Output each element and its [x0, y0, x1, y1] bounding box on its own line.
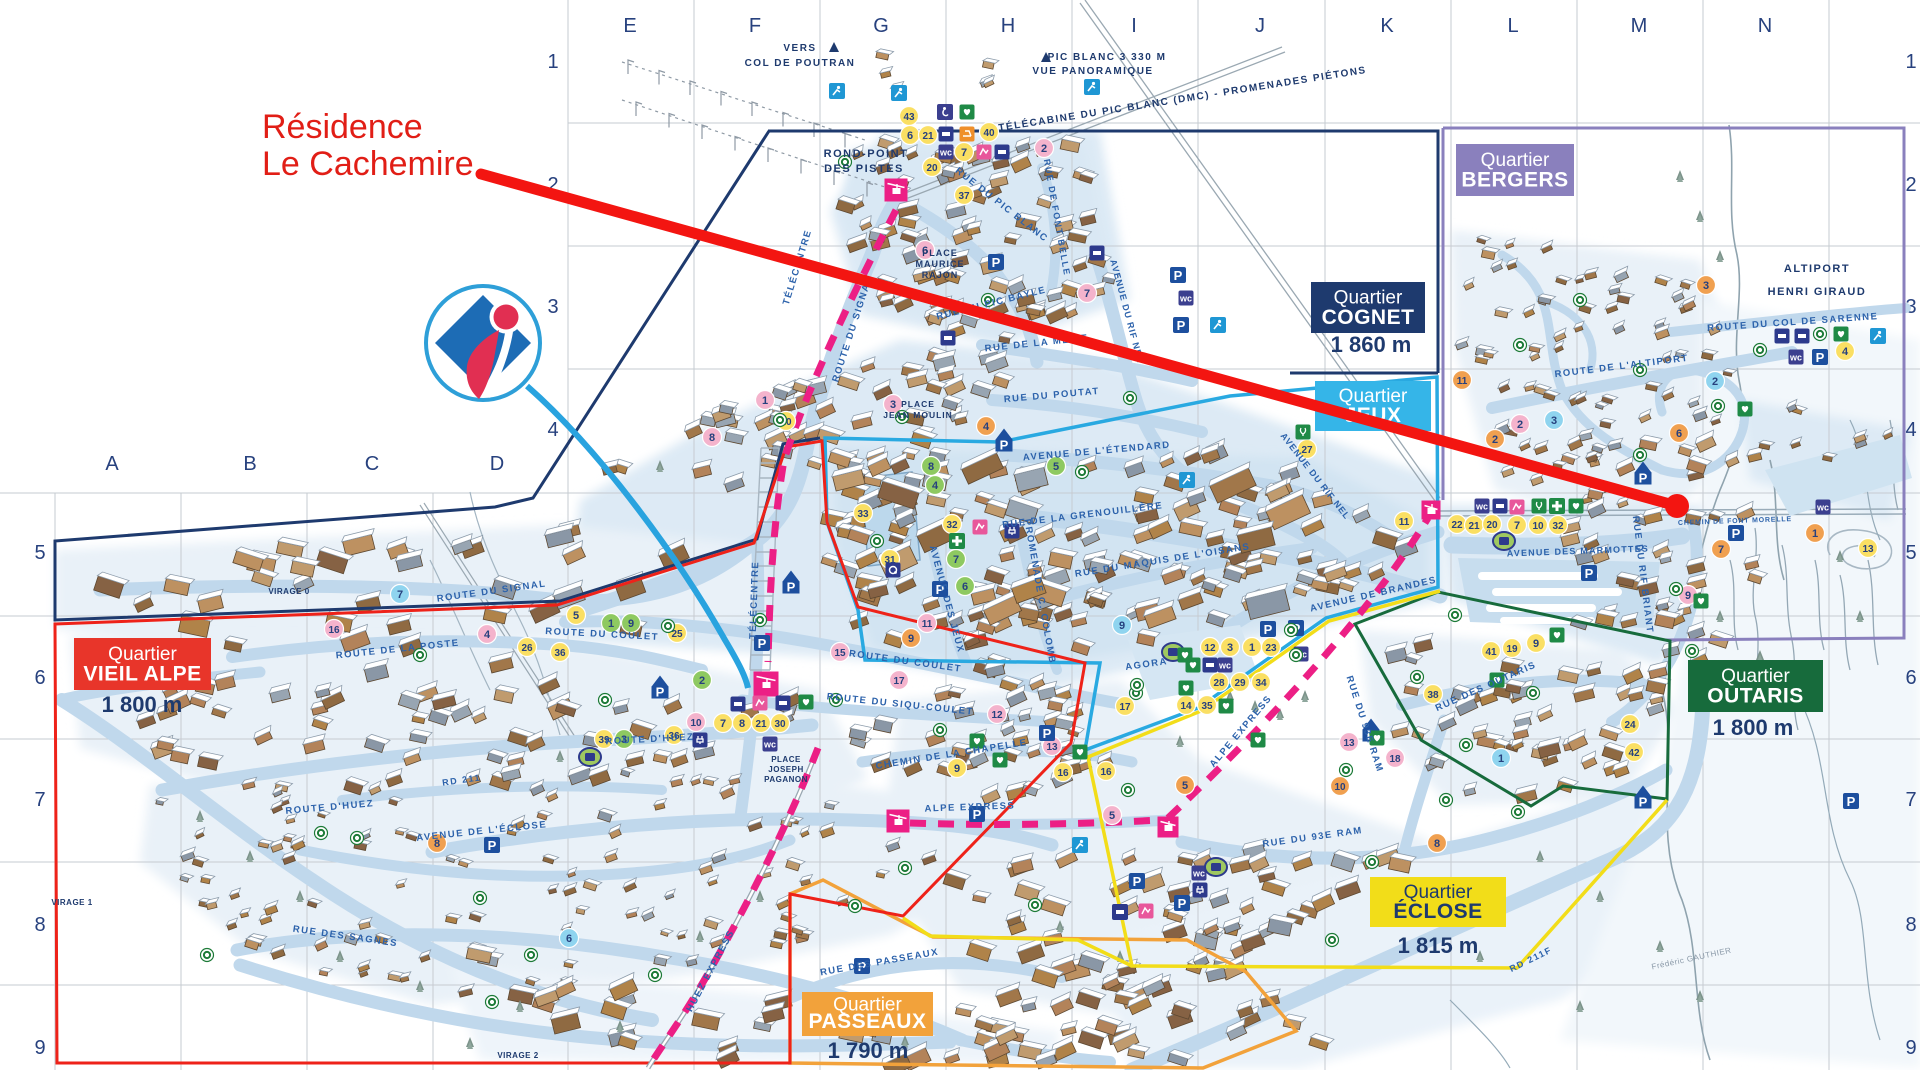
svg-text:9: 9 [34, 1037, 45, 1059]
svg-text:7: 7 [1905, 789, 1916, 811]
svg-text:7: 7 [34, 789, 45, 811]
svg-text:VIRAGE 2: VIRAGE 2 [497, 1051, 538, 1060]
svg-text:PASSEAUX: PASSEAUX [809, 1010, 927, 1033]
svg-text:38: 38 [1427, 690, 1439, 701]
svg-text:9: 9 [1533, 638, 1539, 650]
svg-text:P: P [656, 685, 665, 700]
svg-text:5: 5 [1053, 461, 1059, 473]
svg-text:6: 6 [1905, 667, 1916, 689]
svg-text:5: 5 [1905, 542, 1916, 564]
svg-text:32: 32 [946, 520, 958, 531]
svg-text:2: 2 [1492, 434, 1498, 446]
svg-text:VIEIL ALPE: VIEIL ALPE [83, 663, 201, 686]
svg-text:4: 4 [547, 419, 558, 441]
svg-text:6: 6 [1676, 428, 1682, 440]
svg-text:9: 9 [1905, 1037, 1916, 1059]
svg-text:9: 9 [1119, 620, 1125, 632]
svg-text:J: J [1255, 15, 1265, 37]
svg-text:4: 4 [932, 480, 939, 492]
svg-text:37: 37 [958, 191, 970, 202]
svg-text:1: 1 [1905, 51, 1916, 73]
svg-text:1 815 m: 1 815 m [1398, 933, 1479, 958]
svg-text:VUE PANORAMIQUE: VUE PANORAMIQUE [1032, 66, 1153, 77]
svg-text:19: 19 [1506, 644, 1518, 655]
svg-text:10: 10 [1532, 521, 1544, 532]
svg-text:7: 7 [1084, 288, 1090, 300]
svg-text:20: 20 [1486, 520, 1498, 531]
svg-text:1: 1 [762, 395, 768, 407]
svg-text:VIRAGE 0: VIRAGE 0 [268, 587, 309, 596]
svg-text:4: 4 [1842, 346, 1849, 358]
svg-text:5: 5 [1109, 810, 1115, 822]
svg-text:G: G [873, 15, 889, 37]
svg-text:F: F [749, 15, 761, 37]
svg-text:2: 2 [699, 675, 705, 687]
svg-text:12: 12 [991, 710, 1003, 721]
svg-text:wc: wc [939, 148, 952, 158]
svg-text:33: 33 [857, 509, 869, 520]
svg-text:4: 4 [983, 421, 990, 433]
svg-text:M: M [1631, 15, 1648, 37]
svg-text:JEAN MOULIN: JEAN MOULIN [883, 410, 953, 420]
svg-text:P: P [1174, 268, 1183, 283]
svg-text:2: 2 [1905, 174, 1916, 196]
svg-text:1 800 m: 1 800 m [1713, 715, 1794, 740]
svg-text:3: 3 [890, 399, 896, 411]
svg-text:34: 34 [1255, 678, 1267, 689]
svg-text:H: H [1001, 15, 1015, 37]
svg-text:7: 7 [1514, 520, 1520, 532]
svg-text:1: 1 [608, 618, 614, 630]
svg-text:ROND-POINT: ROND-POINT [824, 148, 909, 160]
svg-text:A: A [105, 453, 119, 475]
svg-text:8: 8 [928, 461, 934, 473]
svg-text:5: 5 [34, 542, 45, 564]
svg-text:5: 5 [1182, 780, 1188, 792]
svg-text:P: P [1178, 896, 1187, 911]
svg-text:MAURICE: MAURICE [916, 259, 965, 269]
svg-text:7: 7 [961, 147, 967, 159]
svg-text:P: P [1043, 726, 1052, 741]
svg-text:B: B [243, 453, 256, 475]
svg-text:PLACE: PLACE [771, 755, 801, 764]
svg-text:13: 13 [1862, 544, 1874, 555]
svg-text:wc: wc [763, 740, 776, 750]
svg-text:4: 4 [1905, 419, 1916, 441]
svg-text:N: N [1758, 15, 1772, 37]
svg-text:7: 7 [953, 554, 959, 566]
svg-text:2: 2 [1517, 419, 1523, 431]
svg-text:P: P [1000, 438, 1009, 453]
svg-text:COL DE POUTRAN: COL DE POUTRAN [745, 58, 856, 69]
svg-text:3: 3 [1551, 415, 1557, 427]
svg-text:21: 21 [922, 131, 934, 142]
svg-text:1: 1 [1812, 528, 1818, 540]
svg-text:COGNET: COGNET [1322, 306, 1415, 329]
svg-text:16: 16 [1057, 768, 1069, 779]
svg-text:3: 3 [1703, 280, 1709, 292]
svg-text:wc: wc [1218, 661, 1231, 671]
svg-text:20: 20 [926, 163, 938, 174]
svg-text:6: 6 [34, 667, 45, 689]
svg-text:36: 36 [554, 648, 566, 659]
svg-text:JOSEPH: JOSEPH [768, 765, 803, 774]
svg-text:15: 15 [834, 648, 846, 659]
svg-text:12: 12 [1204, 643, 1216, 654]
svg-text:8: 8 [739, 718, 745, 730]
svg-text:wc: wc [1192, 869, 1205, 879]
svg-text:11: 11 [1457, 376, 1468, 387]
svg-text:VERS: VERS [783, 43, 816, 54]
svg-text:28: 28 [1213, 678, 1225, 689]
svg-text:21: 21 [755, 719, 767, 730]
svg-text:5: 5 [573, 610, 579, 622]
svg-text:1 800 m: 1 800 m [102, 692, 183, 717]
svg-text:wc: wc [1789, 353, 1802, 363]
svg-text:1 790 m: 1 790 m [828, 1038, 909, 1063]
svg-text:D: D [490, 453, 504, 475]
svg-text:P: P [787, 580, 796, 595]
svg-text:9: 9 [628, 618, 634, 630]
svg-text:wc: wc [1179, 294, 1192, 304]
svg-text:P: P [1639, 471, 1648, 486]
svg-text:P: P [1639, 795, 1648, 810]
svg-text:23: 23 [1265, 643, 1277, 654]
svg-text:9: 9 [954, 763, 960, 775]
svg-text:1 860 m: 1 860 m [1331, 332, 1412, 357]
svg-text:P: P [488, 838, 497, 853]
svg-text:ÉCLOSE: ÉCLOSE [1393, 900, 1482, 923]
svg-text:6: 6 [962, 581, 968, 593]
svg-text:29: 29 [1234, 678, 1246, 689]
svg-text:24: 24 [1624, 720, 1636, 731]
svg-text:P: P [1264, 622, 1273, 637]
svg-text:9: 9 [908, 633, 914, 645]
svg-text:PAGANON: PAGANON [764, 775, 808, 784]
svg-text:7: 7 [1718, 544, 1724, 556]
svg-text:wc: wc [1475, 502, 1488, 512]
svg-text:1: 1 [1498, 753, 1504, 765]
svg-text:3: 3 [547, 296, 558, 318]
svg-text:40: 40 [983, 128, 995, 139]
svg-text:P: P [1732, 526, 1741, 541]
svg-text:P: P [992, 255, 1001, 270]
svg-text:8: 8 [709, 432, 715, 444]
svg-text:6: 6 [907, 130, 913, 142]
svg-text:PIC BLANC 3 330 M: PIC BLANC 3 330 M [1048, 52, 1167, 63]
svg-text:17: 17 [893, 676, 905, 687]
svg-text:P: P [1585, 566, 1594, 581]
svg-text:16: 16 [328, 625, 340, 636]
svg-text:13: 13 [1046, 742, 1058, 753]
svg-text:ALTIPORT: ALTIPORT [1784, 263, 1850, 275]
svg-text:PLACE: PLACE [922, 248, 958, 258]
svg-text:OUTARIS: OUTARIS [1707, 685, 1803, 708]
svg-text:1: 1 [1249, 642, 1255, 654]
svg-text:41: 41 [1485, 647, 1497, 658]
svg-text:P: P [1816, 350, 1825, 365]
svg-text:9: 9 [1685, 590, 1691, 602]
svg-text:4: 4 [484, 629, 491, 641]
svg-text:26: 26 [521, 643, 533, 654]
svg-text:42: 42 [1628, 748, 1640, 759]
svg-text:PLACE: PLACE [901, 399, 935, 409]
svg-text:16: 16 [1100, 767, 1112, 778]
svg-text:13: 13 [1343, 738, 1355, 749]
svg-text:BERGERS: BERGERS [1461, 169, 1568, 192]
svg-text:P: P [1133, 874, 1142, 889]
svg-text:wc: wc [1816, 503, 1829, 513]
svg-text:7: 7 [720, 718, 726, 730]
svg-text:I: I [1131, 15, 1137, 37]
svg-text:11: 11 [1399, 517, 1410, 528]
svg-text:C: C [365, 453, 379, 475]
svg-text:Résidence: Résidence [262, 108, 423, 146]
svg-text:E: E [623, 15, 636, 37]
svg-text:RAJON: RAJON [922, 270, 959, 280]
svg-text:K: K [1380, 15, 1394, 37]
svg-text:DES PISTES: DES PISTES [824, 163, 904, 175]
svg-text:8: 8 [1905, 914, 1916, 936]
svg-text:3: 3 [1227, 642, 1233, 654]
svg-text:43: 43 [903, 112, 915, 123]
svg-text:HENRI GIRAUD: HENRI GIRAUD [1768, 286, 1867, 298]
svg-text:7: 7 [397, 589, 403, 601]
svg-text:14: 14 [1180, 701, 1192, 712]
svg-text:P: P [758, 636, 767, 651]
svg-text:VIRAGE 1: VIRAGE 1 [51, 898, 92, 907]
svg-text:2: 2 [1041, 143, 1047, 155]
svg-text:8: 8 [34, 914, 45, 936]
svg-text:1: 1 [547, 51, 558, 73]
svg-text:P: P [1847, 794, 1856, 809]
svg-text:22: 22 [1451, 520, 1463, 531]
svg-text:L: L [1507, 15, 1518, 37]
svg-text:35: 35 [1201, 701, 1213, 712]
svg-text:32: 32 [1552, 521, 1564, 532]
svg-text:30: 30 [774, 719, 786, 730]
svg-text:P: P [1177, 318, 1186, 333]
svg-text:18: 18 [1389, 754, 1401, 765]
svg-text:21: 21 [1468, 521, 1480, 532]
svg-text:8: 8 [1434, 838, 1440, 850]
svg-text:10: 10 [690, 718, 702, 729]
svg-text:10: 10 [1334, 782, 1346, 793]
svg-text:Le Cachemire: Le Cachemire [262, 145, 474, 183]
svg-text:2: 2 [1712, 376, 1718, 388]
svg-text:17: 17 [1119, 702, 1131, 713]
svg-text:11: 11 [922, 619, 933, 630]
svg-text:6: 6 [566, 933, 572, 945]
